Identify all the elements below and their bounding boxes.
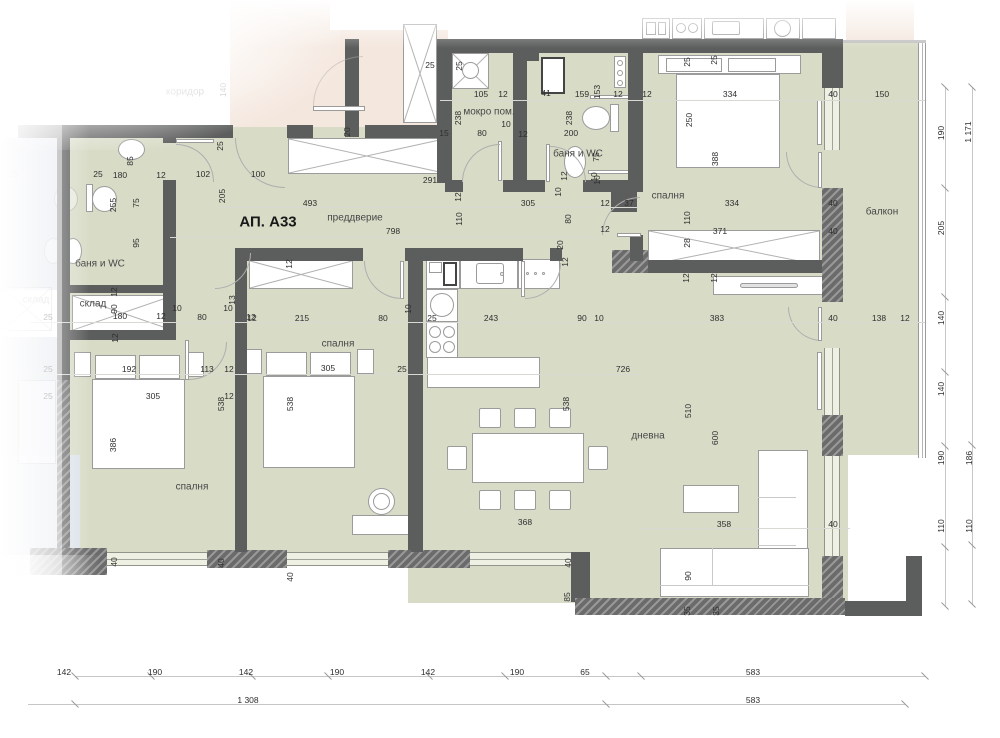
dimension-label: 85 [562, 592, 572, 601]
dimension-label: 510 [683, 404, 693, 418]
wall [235, 248, 247, 555]
crossed-lines-icon [250, 261, 352, 288]
dimension-label: 15 [439, 128, 448, 138]
chair [514, 408, 536, 428]
dimension-label: 10 [589, 172, 599, 181]
dimension-label: 25 [93, 169, 102, 179]
dimension-label: 538 [561, 397, 571, 411]
window-dining [470, 552, 571, 566]
wall-pier [822, 415, 843, 456]
dimension-label: 110 [454, 212, 464, 226]
wardrobe-icon [288, 138, 445, 174]
dimension-label: 12 [642, 89, 651, 99]
dimension-label: 153 [592, 85, 602, 99]
dimension-label: 80 [197, 312, 206, 322]
dimension-label: 35 [682, 606, 692, 615]
wall [287, 125, 313, 138]
room-label: склад [80, 299, 107, 310]
dimension-label: 20 [342, 127, 352, 136]
wall [411, 530, 423, 552]
plant-pot-icon [373, 493, 390, 510]
dimension-label: 12 [284, 259, 294, 268]
radiator-icon [817, 100, 822, 145]
dimension-label: 12 [109, 287, 119, 296]
neighbor-counter [802, 18, 836, 39]
apartment-title: АП. А33 [239, 214, 296, 231]
dot-icon [617, 80, 623, 86]
dimension-label: 371 [713, 226, 727, 236]
crossed-lines-icon [404, 25, 436, 122]
radiator-icon [740, 283, 798, 288]
dimension-label: 334 [723, 89, 737, 99]
dimension-label: 25 [425, 60, 434, 70]
chair [479, 408, 501, 428]
burner-icon [429, 326, 441, 338]
room-label: склад [23, 295, 50, 306]
wall [70, 285, 175, 293]
dimension-label: 25 [43, 364, 52, 374]
dimension-label: 368 [518, 517, 532, 527]
dimension-label: 90 [577, 313, 586, 323]
dot-icon [617, 70, 623, 76]
dimension-label: 10 [403, 304, 413, 313]
door-leaf [818, 152, 822, 188]
wall [163, 137, 176, 143]
dimension-label: 75 [131, 198, 141, 207]
dimension-label: 388 [710, 152, 720, 166]
dimension-label: 12 [600, 198, 609, 208]
dimension-label: 100 [251, 169, 265, 179]
wall [437, 39, 452, 183]
dimension-label: 12 [110, 333, 120, 342]
neighbor-burner-icon [676, 23, 686, 33]
dimension-label: 12 [156, 170, 165, 180]
wall [18, 125, 233, 138]
room-label: спалня [652, 191, 685, 202]
burner-icon [443, 341, 455, 353]
room-label: спалня [176, 482, 209, 493]
room-label: мокро пом. [463, 107, 514, 118]
dimension-label: 90 [683, 571, 693, 580]
closet-icon [403, 24, 437, 123]
dimension-label: 305 [521, 198, 535, 208]
dimension-label: 142 [421, 667, 435, 677]
balcony-top-edge [843, 40, 926, 43]
door-leaf [818, 307, 822, 341]
dimension-label: 25 [43, 391, 52, 401]
dimension-label: 110 [936, 519, 946, 533]
faucet-icon [500, 272, 504, 276]
dimension-label: 250 [684, 113, 694, 127]
dimension-line [220, 207, 640, 208]
room-label: коридор [166, 87, 204, 98]
balcony-railing [918, 40, 926, 458]
dimension-label: 28 [682, 238, 692, 247]
dimension-label: 798 [386, 226, 400, 236]
dimension-label: 205 [936, 221, 946, 235]
dimension-line [30, 322, 925, 323]
dimension-label: 95 [131, 238, 141, 247]
fridge-door [443, 262, 457, 286]
dimension-label: 65 [580, 667, 589, 677]
window-living-2 [824, 456, 840, 556]
dimension-label: 75 [591, 152, 601, 161]
dimension-label: 140 [936, 382, 946, 396]
dimension-label: 85 [125, 156, 135, 165]
dimension-label: 12 [681, 273, 691, 282]
dimension-label: 40 [828, 313, 837, 323]
dimension-line [640, 528, 850, 529]
dimension-line [30, 374, 640, 375]
sofa-cushion-line [758, 497, 796, 498]
room-label: балкон [866, 207, 898, 218]
dot-icon [617, 60, 623, 66]
dimension-label: 40 [109, 557, 119, 566]
crossed-lines-icon [289, 139, 444, 173]
dimension-label: 40 [828, 89, 837, 99]
dimension-label: 583 [746, 695, 760, 705]
room-label: баня и WC [75, 259, 125, 270]
double-bed [263, 376, 355, 468]
wall [235, 530, 247, 552]
neighbor-appliance [646, 22, 656, 35]
dimension-label: 25 [9, 169, 18, 179]
floor-plan: АП. А33преддвериемокро пом.баня и WCбаня… [0, 0, 1000, 738]
double-bed [92, 379, 185, 469]
room-label: дневна [631, 431, 664, 442]
dimension-label: 10 [553, 187, 563, 196]
nightstand [357, 349, 374, 374]
dimension-label: 305 [321, 363, 335, 373]
dimension-label: 200 [564, 128, 578, 138]
burner-icon [443, 326, 455, 338]
coffee-table [683, 485, 739, 513]
dimension-label: 386 [108, 438, 118, 452]
pillow [139, 355, 180, 379]
dimension-label: 358 [717, 519, 731, 529]
dimension-label: 12 [900, 313, 909, 323]
wall-pier [30, 548, 107, 575]
toilet-icon [582, 106, 610, 130]
dimension-label: 180 [113, 170, 127, 180]
sofa-cushion-line [758, 545, 796, 546]
dimension-line [440, 100, 925, 101]
dimension-label: 12 [613, 89, 622, 99]
dimension-label: 105 [474, 89, 488, 99]
dimension-label: 383 [710, 313, 724, 323]
dimension-label: 12 [559, 171, 569, 180]
dimension-label: 110 [964, 519, 974, 533]
chair [479, 490, 501, 510]
chair [549, 490, 571, 510]
chair [588, 446, 608, 470]
sofa-cushion-line [712, 548, 713, 586]
wall-pier [575, 598, 845, 615]
dimension-label: 12 [498, 89, 507, 99]
dimension-label: 20 [555, 240, 565, 249]
dimension-label: 583 [746, 667, 760, 677]
wall [571, 552, 590, 602]
dimension-label: 493 [303, 198, 317, 208]
door-leaf [176, 139, 214, 143]
sofa-back-line [660, 585, 809, 586]
nightstand [245, 349, 262, 374]
wall [408, 252, 423, 552]
wall [513, 52, 527, 180]
dimension-label: 25 [427, 313, 436, 323]
wall [628, 39, 643, 180]
dimension-line [170, 237, 595, 238]
wall [822, 52, 843, 88]
wall-pier [57, 380, 70, 555]
wall-pier [388, 550, 470, 568]
dimension-label: 192 [122, 364, 136, 374]
dimension-label: 140 [218, 83, 228, 97]
wall [513, 52, 539, 61]
neighbor-bath-left [0, 137, 58, 290]
dimension-label: 1 171 [963, 121, 973, 142]
dimension-label: 90 [109, 304, 119, 313]
dimension-label: 37 [624, 198, 633, 208]
dimension-label: 243 [484, 313, 498, 323]
wardrobe-icon [249, 260, 353, 289]
dimension-label: 238 [564, 111, 574, 125]
dimension-label: 25 [454, 61, 464, 70]
radiator-icon [817, 352, 822, 410]
dimension-label: 186 [964, 451, 974, 465]
dimension-label: 40 [828, 198, 837, 208]
dimension-label: 40 [828, 519, 837, 529]
shower-drain-icon [462, 62, 479, 79]
dimension-label: 538 [285, 397, 295, 411]
kitchen-island [427, 357, 540, 388]
dimension-chain-line [28, 704, 905, 705]
dimension-label: 159 [575, 89, 589, 99]
dimension-label: 190 [936, 451, 946, 465]
dimension-label: 190 [148, 667, 162, 677]
dimension-label: 10 [594, 313, 603, 323]
door-leaf [313, 106, 365, 111]
wall [57, 137, 70, 380]
dimension-label: 334 [725, 198, 739, 208]
dimension-label: 40 [828, 226, 837, 236]
dimension-label: 150 [875, 89, 889, 99]
neighbor-burner-icon [688, 23, 698, 33]
chair [447, 446, 467, 470]
dimension-label: 25 [215, 141, 225, 150]
neighbor-appliance [658, 22, 666, 35]
side-table [352, 515, 410, 535]
neighbor-balcony-top [846, 0, 914, 40]
dimension-label: 25 [682, 57, 692, 66]
dimension-label: 80 [378, 313, 387, 323]
dimension-label: 140 [936, 311, 946, 325]
dimension-label: 12 [453, 192, 463, 201]
dimension-label: 12 [518, 129, 527, 139]
dimension-label: 113 [200, 364, 214, 374]
wall [70, 330, 175, 340]
chair [514, 490, 536, 510]
dimension-label: 25 [397, 364, 406, 374]
balcony-parapet [906, 556, 922, 616]
dimension-label: 12 [156, 311, 165, 321]
room-label: спалня [322, 339, 355, 350]
dimension-label: 190 [330, 667, 344, 677]
dimension-label: 238 [453, 111, 463, 125]
burner-icon [429, 341, 441, 353]
dimension-label: 35 [711, 606, 721, 615]
dimension-label: 80 [477, 128, 486, 138]
dimension-label: 12 [709, 273, 719, 282]
pillow [728, 58, 776, 72]
dimension-label: 13 [227, 295, 237, 304]
dimension-label: 190 [936, 126, 946, 140]
neighbor-sink-bowl [712, 21, 740, 35]
fridge-door [429, 262, 442, 273]
window-living-1 [824, 348, 840, 415]
wall-pier [822, 556, 843, 601]
dimension-label: 41 [541, 88, 550, 98]
dimension-label: 80 [563, 214, 573, 223]
dimension-label: 12 [560, 257, 570, 266]
dimension-label: 25 [709, 55, 719, 64]
dimension-label: 25 [43, 312, 52, 322]
dimension-label: 205 [217, 189, 227, 203]
wall [503, 180, 545, 192]
dimension-label: 305 [146, 391, 160, 401]
dimension-label: 291 [423, 175, 437, 185]
room-label: преддверие [327, 213, 382, 224]
dimension-label: 1 308 [237, 695, 258, 705]
dimension-label: 215 [295, 313, 309, 323]
dimension-label: 110 [682, 211, 692, 225]
dimension-label: 12 [247, 313, 256, 323]
dimension-label: 600 [710, 431, 720, 445]
dimension-label: 726 [616, 364, 630, 374]
window-bedroom-middle [287, 552, 388, 566]
neighbor-bowl-icon [774, 20, 791, 37]
dimension-label: 190 [510, 667, 524, 677]
dimension-label: 10 [172, 303, 181, 313]
dimension-label: 40 [216, 558, 226, 567]
dimension-label: 10 [501, 119, 510, 129]
pillow [266, 352, 307, 376]
floor-balcony [843, 40, 923, 455]
wall [235, 248, 363, 261]
dimension-label: 142 [239, 667, 253, 677]
wall [630, 235, 643, 261]
dimension-label: 538 [216, 397, 226, 411]
dimension-label: 142 [57, 667, 71, 677]
dimension-label: 102 [196, 169, 210, 179]
dining-table [472, 433, 584, 483]
dimension-label: 138 [872, 313, 886, 323]
toilet-tank [610, 104, 619, 132]
dimension-label: 12 [224, 364, 233, 374]
dimension-label: 40 [285, 572, 295, 581]
dimension-chain-line [75, 676, 925, 677]
dimension-label: 12 [600, 224, 609, 234]
dimension-label: 40 [563, 558, 573, 567]
dimension-label: 255 [108, 198, 118, 212]
